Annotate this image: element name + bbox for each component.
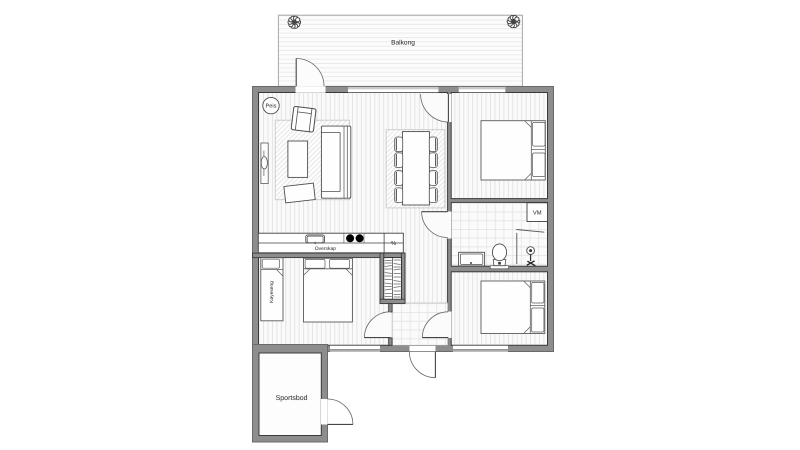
svg-text:VM: VM	[533, 210, 542, 216]
svg-text:Sportsbod: Sportsbod	[276, 394, 308, 402]
svg-text:Balkong: Balkong	[391, 39, 415, 46]
svg-text:Overskap: Overskap	[315, 246, 337, 252]
svg-text:%: %	[391, 240, 396, 247]
svg-text:Køyeseng: Køyeseng	[269, 281, 275, 303]
svg-text:Peis: Peis	[266, 103, 277, 110]
